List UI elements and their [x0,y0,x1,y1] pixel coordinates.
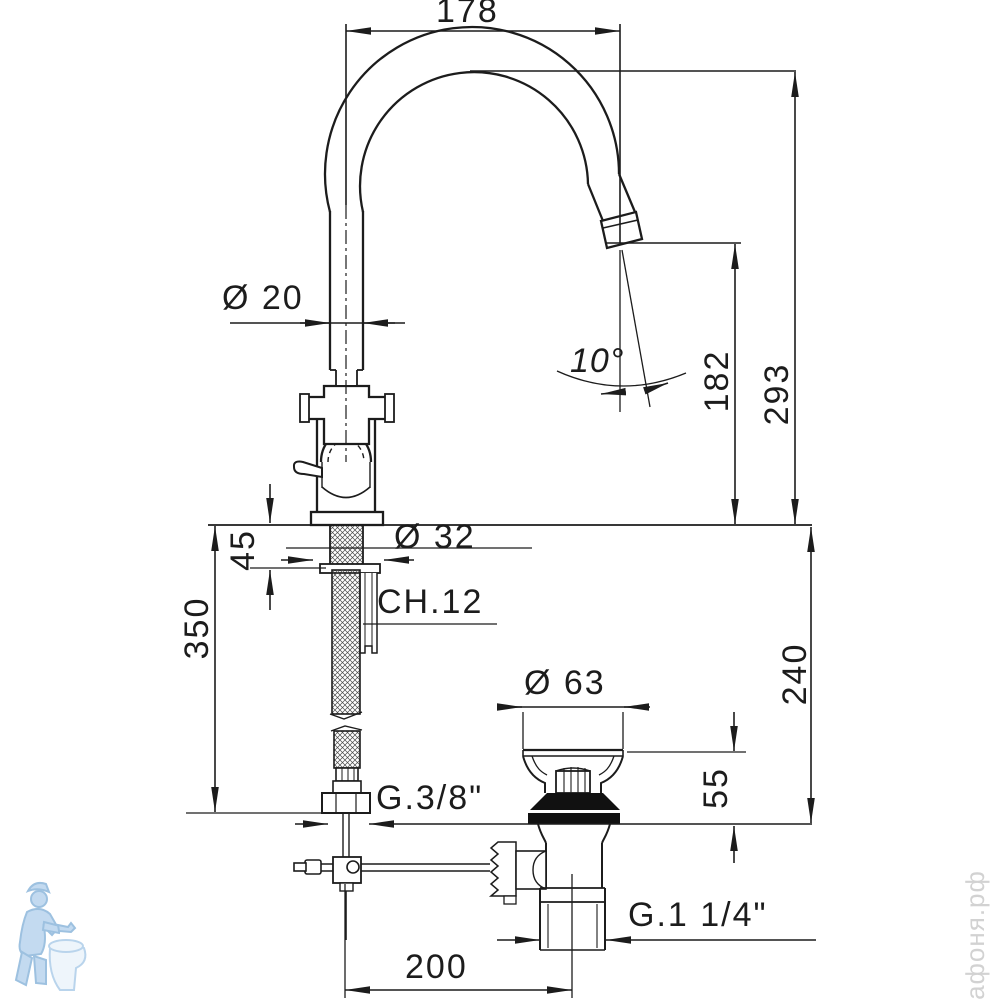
under-deck-assembly [320,525,380,860]
plumber-leg-right [34,956,46,984]
dim-label-dia20: Ø 20 [222,281,304,315]
dim-label-240: 240 [778,643,812,706]
dim-label-350: 350 [180,597,214,660]
plumber-leg-left [16,952,32,985]
dim-label-182: 182 [700,350,734,413]
dim-label-178: 178 [436,0,499,28]
flex-hose-lower [334,731,360,768]
cross-handle [301,386,393,444]
dim-label-55: 55 [699,767,733,809]
spout-inner-arc [360,72,588,212]
rod-end-tip [294,863,306,871]
watermark-plumber-logo [16,883,85,990]
wrench-shape [58,923,75,932]
dim-label-dia32: Ø 32 [394,520,476,554]
toilet-seat [49,940,83,952]
handle-cap-left [300,394,309,422]
dim-label-angle10: 10° [570,344,624,378]
dim-label-293: 293 [760,363,794,426]
clamp-screw [347,861,359,873]
dim-label-200: 200 [405,950,468,984]
rubber-seal-band [528,813,620,824]
dim-label-ch12: CH.12 [377,585,483,619]
dim-label-45: 45 [226,529,260,571]
drain-assembly [491,750,623,950]
knurled-nut [491,842,516,896]
rod-end-cap [305,860,321,874]
technical-drawing-canvas: 178 Ø 20 10° Ø 32 CH.12 Ø 63 G.3/8" G.1 … [0,0,1000,1000]
threaded-shank [330,525,363,567]
base-flange [311,512,383,525]
dim-label-g38: G.3/8" [376,781,483,815]
popup-rod-assembly [294,857,490,940]
faucet-spout [325,27,642,386]
popup-plug-knob [556,767,590,793]
supply-hex-nut [322,793,370,813]
flex-hose-upper [332,570,360,714]
hose-collar [333,781,361,793]
handle-cap-right [385,394,394,422]
hose-ferrule [336,768,358,781]
plumber-head [31,891,47,907]
dim-label-g114: G.1 1/4" [628,898,768,932]
rubber-seal-cone [530,793,620,810]
mounting-stud [360,573,377,653]
watermark-site-text: афоня.рф [962,870,988,1000]
faucet-body [294,370,394,525]
dim-label-dia63: Ø 63 [524,666,606,700]
clamp-tab [340,883,353,891]
spout-outer-arc [325,27,619,212]
faucet-line-art [0,0,1000,1000]
drain-side-inlet [491,842,546,904]
